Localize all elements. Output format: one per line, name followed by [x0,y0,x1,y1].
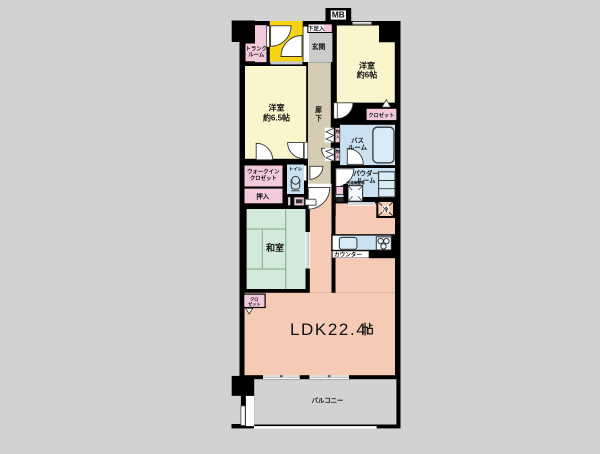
svg-text:ルーム: ルーム [248,52,265,59]
svg-text:MB: MB [332,11,345,20]
svg-text:下足入: 下足入 [308,25,325,33]
svg-text:トイレ: トイレ [289,167,303,172]
svg-text:入: 入 [335,154,340,159]
svg-text:トランク: トランク [246,45,268,53]
svg-text:約6.5帖: 約6.5帖 [263,112,290,122]
svg-text:洗濯機置場: 洗濯機置場 [347,180,365,185]
svg-text:約6帖: 約6帖 [357,69,377,79]
svg-text:ルーム: ルーム [348,144,368,152]
svg-text:クロゼット: クロゼット [250,174,277,182]
svg-text:クロゼット: クロゼット [368,111,394,119]
svg-text:入: 入 [335,134,340,139]
svg-text:下: 下 [315,115,322,123]
svg-text:ウォークイン: ウォークイン [247,168,280,176]
svg-text:物: 物 [336,149,340,154]
svg-text:押入: 押入 [256,191,269,200]
svg-text:玄関: 玄関 [312,42,326,51]
svg-text:カウンター: カウンター [334,251,362,259]
svg-text:和室: 和室 [265,242,284,253]
svg-text:LDK22.4: LDK22.4 [290,320,367,339]
svg-text:ゼット: ゼット [248,300,261,307]
svg-text:洋室: 洋室 [359,60,375,70]
svg-text:洋室: 洋室 [269,103,285,113]
svg-text:バス: バス [351,137,364,145]
svg-text:パウダー: パウダー [353,169,379,178]
svg-text:バルコニー: バルコニー [312,396,344,404]
svg-text:冷: 冷 [383,205,389,213]
svg-text:廊: 廊 [315,105,322,114]
svg-text:物: 物 [336,129,340,134]
